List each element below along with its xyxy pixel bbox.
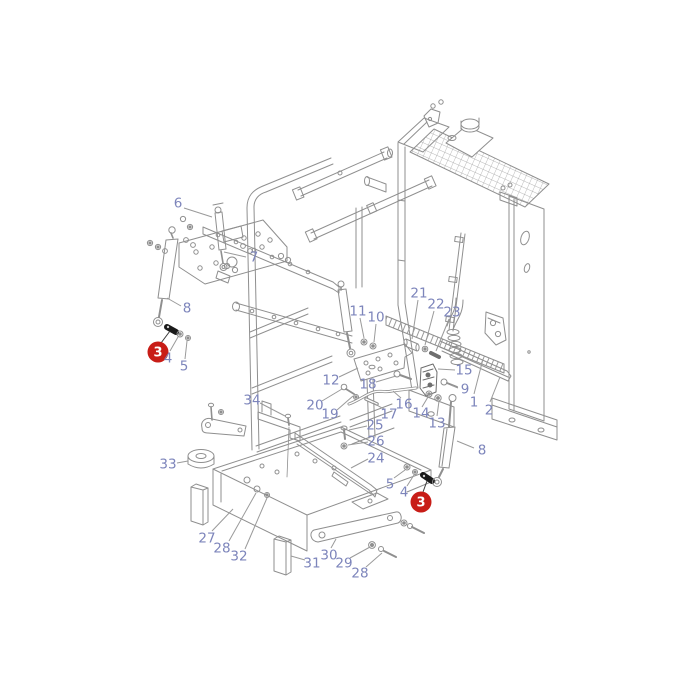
part-number: 13 — [428, 416, 445, 432]
part-number: 9 — [461, 382, 470, 398]
callout-23-10: 23 — [443, 305, 460, 321]
part-number: 34 — [243, 393, 260, 409]
support-tube-upper — [292, 147, 392, 200]
callout-8-38: 8 — [478, 443, 487, 459]
callout-18-16: 18 — [359, 377, 376, 393]
diagram-canvas: 6783451110212223159121218201916171413252… — [0, 0, 700, 700]
part-number: 22 — [427, 297, 444, 313]
leader-line — [376, 376, 396, 382]
callout-34-26: 34 — [243, 393, 260, 409]
callout-15-11: 15 — [455, 363, 472, 379]
callout-9-12: 9 — [461, 382, 470, 398]
badge-number: 3 — [416, 496, 425, 511]
callout-22-9: 22 — [427, 297, 444, 313]
callout-21-8: 21 — [410, 286, 427, 302]
part-number: 10 — [367, 310, 384, 326]
part-number: 19 — [321, 407, 338, 423]
callout-4-36: 4 — [400, 485, 409, 501]
part-number: 31 — [303, 556, 320, 572]
callout-8-2: 8 — [183, 301, 192, 317]
leader-line — [437, 401, 439, 416]
callout-5-35: 5 — [386, 477, 395, 493]
callout-12-15: 12 — [322, 373, 339, 389]
part-number: 33 — [159, 457, 176, 473]
leader-line — [170, 337, 178, 351]
callout-5-5: 5 — [180, 359, 189, 375]
callout-25-23: 25 — [366, 418, 383, 434]
leader-line — [161, 331, 170, 343]
parts-diagram: 6783451110212223159121218201916171413252… — [0, 0, 700, 700]
part-number: 21 — [410, 286, 427, 302]
callout-29-33: 29 — [335, 556, 352, 572]
callout-31-31: 31 — [303, 556, 320, 572]
part-number: 12 — [322, 373, 339, 389]
part-number: 8 — [478, 443, 487, 459]
gas-strut-small — [213, 203, 230, 283]
part-number: 8 — [183, 301, 192, 317]
leader-line — [457, 441, 474, 448]
leader-line — [224, 252, 246, 257]
part-number: 18 — [359, 377, 376, 393]
part-number: 23 — [443, 305, 460, 321]
callout-10-7: 10 — [367, 310, 384, 326]
part-number: 26 — [367, 434, 384, 450]
leader-line — [423, 481, 427, 492]
part-number: 16 — [395, 397, 412, 413]
leader-line — [351, 459, 368, 468]
leader-line — [245, 498, 267, 549]
badge-number: 3 — [153, 346, 162, 361]
callout-28-29: 28 — [213, 541, 230, 557]
leader-line — [184, 208, 212, 217]
callout-14-21: 14 — [412, 406, 429, 422]
part-number: 29 — [335, 556, 352, 572]
part-number: 5 — [180, 359, 189, 375]
leader-line — [339, 368, 358, 377]
callout-26-24: 26 — [367, 434, 384, 450]
part-number: 28 — [351, 566, 368, 582]
leader-line — [438, 369, 455, 370]
part-number: 1 — [470, 395, 479, 411]
callout-7-1: 7 — [250, 250, 259, 266]
part-number: 5 — [386, 477, 395, 493]
callout-13-22: 13 — [428, 416, 445, 432]
part-number: 7 — [250, 250, 259, 266]
gas-strut-left — [154, 227, 179, 327]
part-number: 6 — [174, 196, 183, 212]
part-number: 28 — [213, 541, 230, 557]
callout-2-14: 2 — [485, 403, 494, 419]
leader-line — [360, 318, 364, 338]
callout-24-25: 24 — [367, 451, 384, 467]
leader-line — [374, 324, 376, 342]
leader-line — [490, 377, 500, 402]
leader-line — [212, 509, 233, 531]
callout-1-13: 1 — [470, 395, 479, 411]
callout-4-4: 4 — [164, 351, 173, 367]
gas-strut-right — [433, 395, 457, 487]
leader-line — [177, 461, 188, 463]
callout-3-37: 3 — [411, 492, 432, 513]
part-number: 32 — [230, 549, 247, 565]
leader-line — [322, 389, 342, 401]
part-number: 14 — [412, 406, 429, 422]
rubber-mount — [188, 450, 214, 469]
part-number: 4 — [164, 351, 173, 367]
callout-32-30: 32 — [230, 549, 247, 565]
part-number: 15 — [455, 363, 472, 379]
part-number: 4 — [400, 485, 409, 501]
rubber-pad-left — [191, 484, 208, 525]
part-number: 2 — [485, 403, 494, 419]
part-number: 24 — [367, 451, 384, 467]
leader-line — [350, 547, 370, 558]
leader-line — [185, 341, 187, 359]
leader-line — [394, 470, 405, 478]
callout-28-34: 28 — [351, 566, 368, 582]
callout-16-19: 16 — [395, 397, 412, 413]
part-number: 11 — [349, 304, 366, 320]
callout-6-0: 6 — [174, 196, 183, 212]
callout-19-18: 19 — [321, 407, 338, 423]
leader-line — [167, 298, 181, 306]
callout-11-6: 11 — [349, 304, 366, 320]
part-number: 25 — [366, 418, 383, 434]
callout-33-27: 33 — [159, 457, 176, 473]
